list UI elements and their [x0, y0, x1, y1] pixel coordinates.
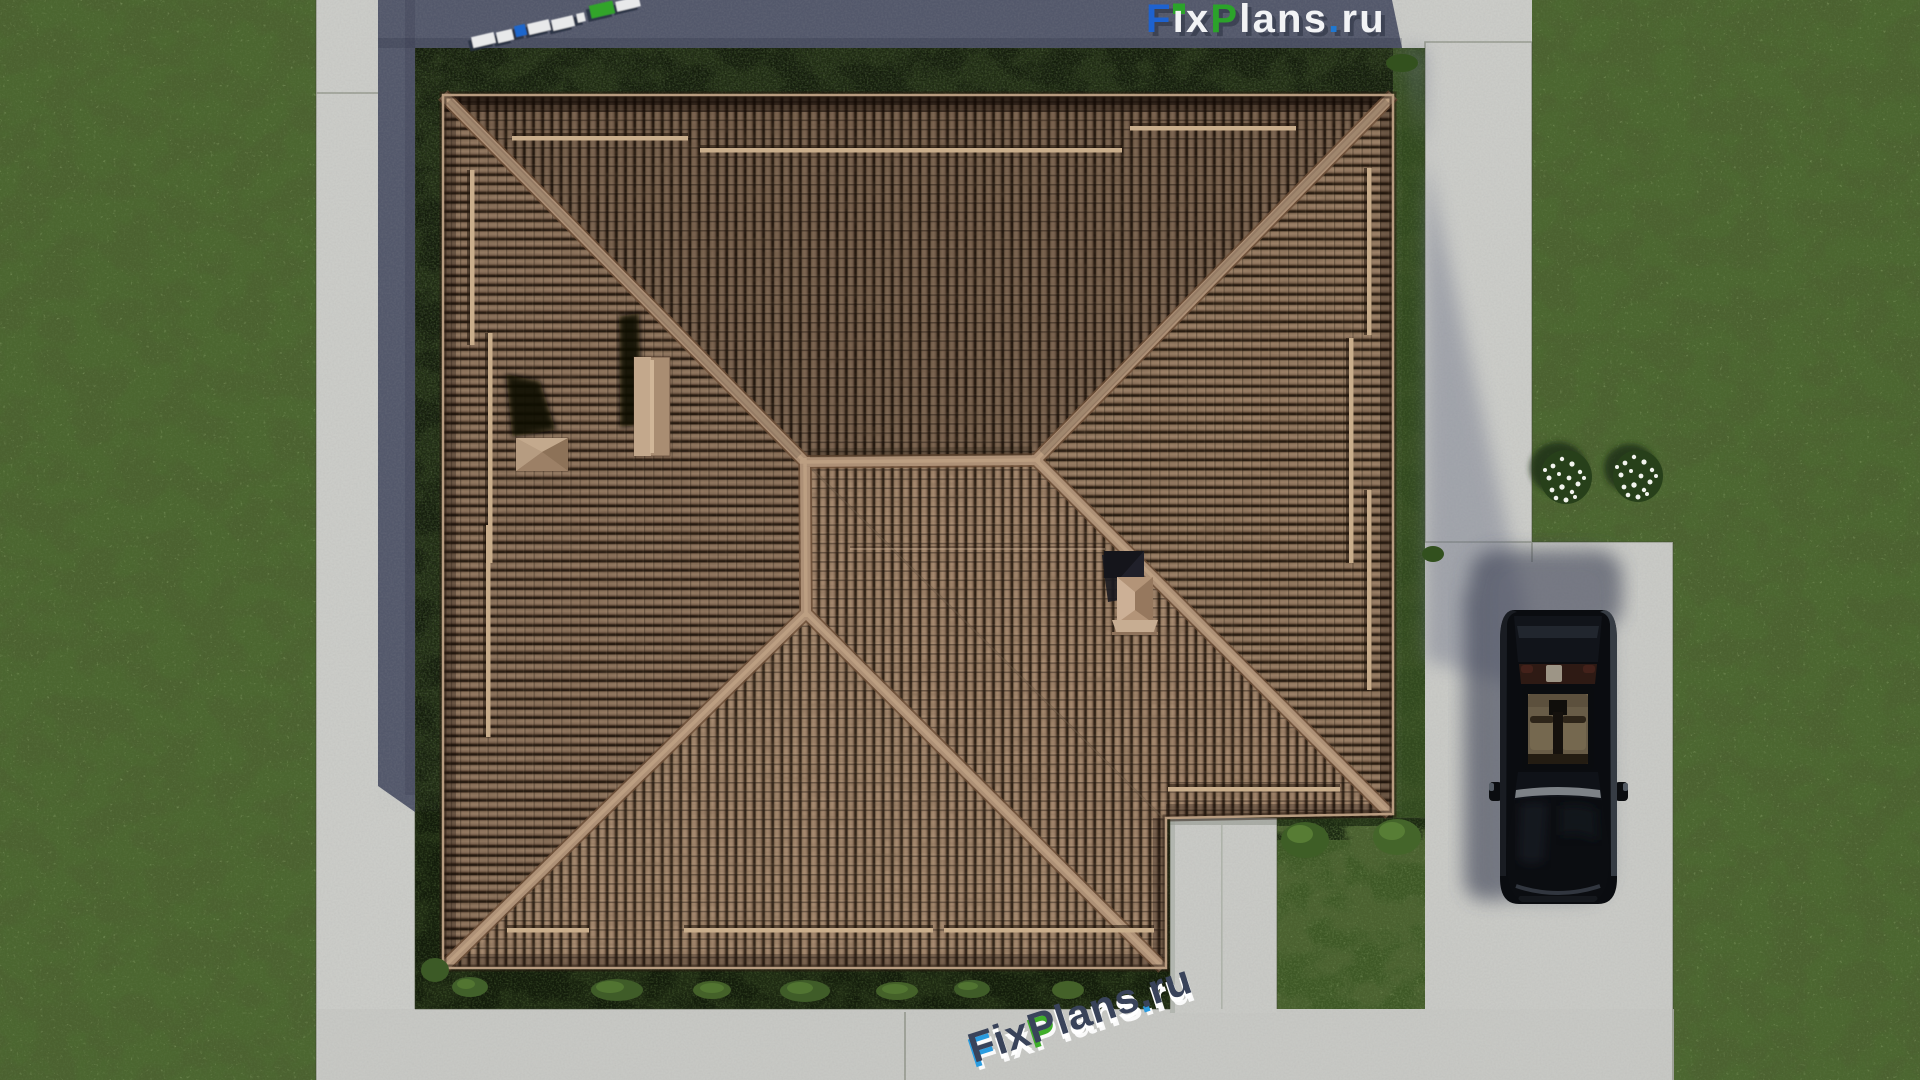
svg-text:FıxPlans.ru: FıxPlans.ru: [1146, 0, 1386, 41]
